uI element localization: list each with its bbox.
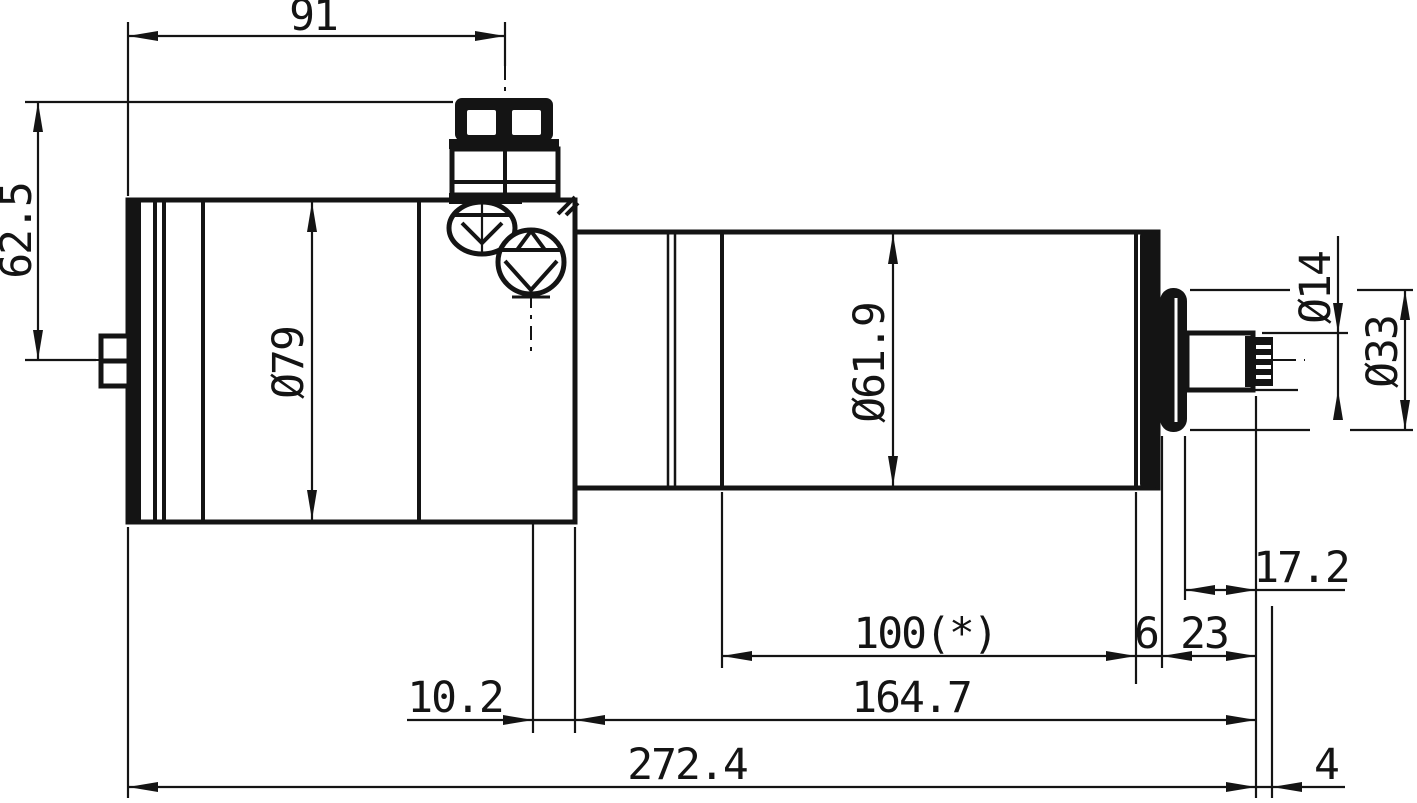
dim-17-2-label: 17.2: [1253, 543, 1349, 593]
arrowhead: [1272, 782, 1302, 792]
dim-62-5-label: 62.5: [0, 183, 42, 279]
arrowhead: [1400, 400, 1410, 430]
arrowhead: [475, 31, 505, 41]
dim-164-7-label: 164.7: [851, 673, 970, 723]
arrowhead: [575, 715, 605, 725]
spindle-motor-drawing: 91 62.5 Ø79 Ø61.9 Ø14 Ø33 100(*) 6 23 17…: [0, 0, 1417, 803]
dim-61-9-label: Ø61.9: [845, 303, 895, 422]
dim-91-label: 91: [289, 0, 337, 41]
dim-23-label: 23: [1180, 609, 1228, 659]
dim-272-4-label: 272.4: [627, 740, 747, 790]
arrowhead: [1226, 585, 1256, 595]
dim-100-label: 100(*): [853, 609, 996, 659]
shaft-outline: [1187, 333, 1253, 390]
arrowhead: [1226, 651, 1256, 661]
arrowhead: [33, 330, 43, 360]
arrowhead: [722, 651, 752, 661]
arrowhead: [128, 31, 158, 41]
arrowhead: [503, 715, 533, 725]
technical-drawing-canvas: 91 62.5 Ø79 Ø61.9 Ø14 Ø33 100(*) 6 23 17…: [0, 0, 1417, 803]
dim-6-label: 6: [1134, 609, 1158, 659]
dim-79-label: Ø79: [264, 327, 314, 399]
arrowhead: [1226, 782, 1256, 792]
rear-terminal-lower: [101, 361, 129, 386]
dim-4-label: 4: [1314, 740, 1338, 790]
shaft-collar: [1160, 288, 1187, 432]
connector-hex-facet: [467, 110, 496, 135]
arrowhead: [1106, 651, 1136, 661]
dim-14-label: Ø14: [1291, 252, 1341, 324]
rear-terminal-upper: [101, 336, 129, 361]
arrowhead: [1333, 390, 1343, 420]
arrowhead: [1185, 585, 1215, 595]
dim-10-2-label: 10.2: [407, 673, 503, 723]
housing-end-cap: [1140, 232, 1158, 488]
connector: [449, 98, 559, 204]
connector-hex-facet: [512, 110, 541, 135]
arrowhead: [1400, 290, 1410, 320]
arrowhead: [128, 782, 158, 792]
arrowhead: [1226, 715, 1256, 725]
arrowhead: [33, 102, 43, 132]
dim-33-label: Ø33: [1358, 316, 1408, 388]
